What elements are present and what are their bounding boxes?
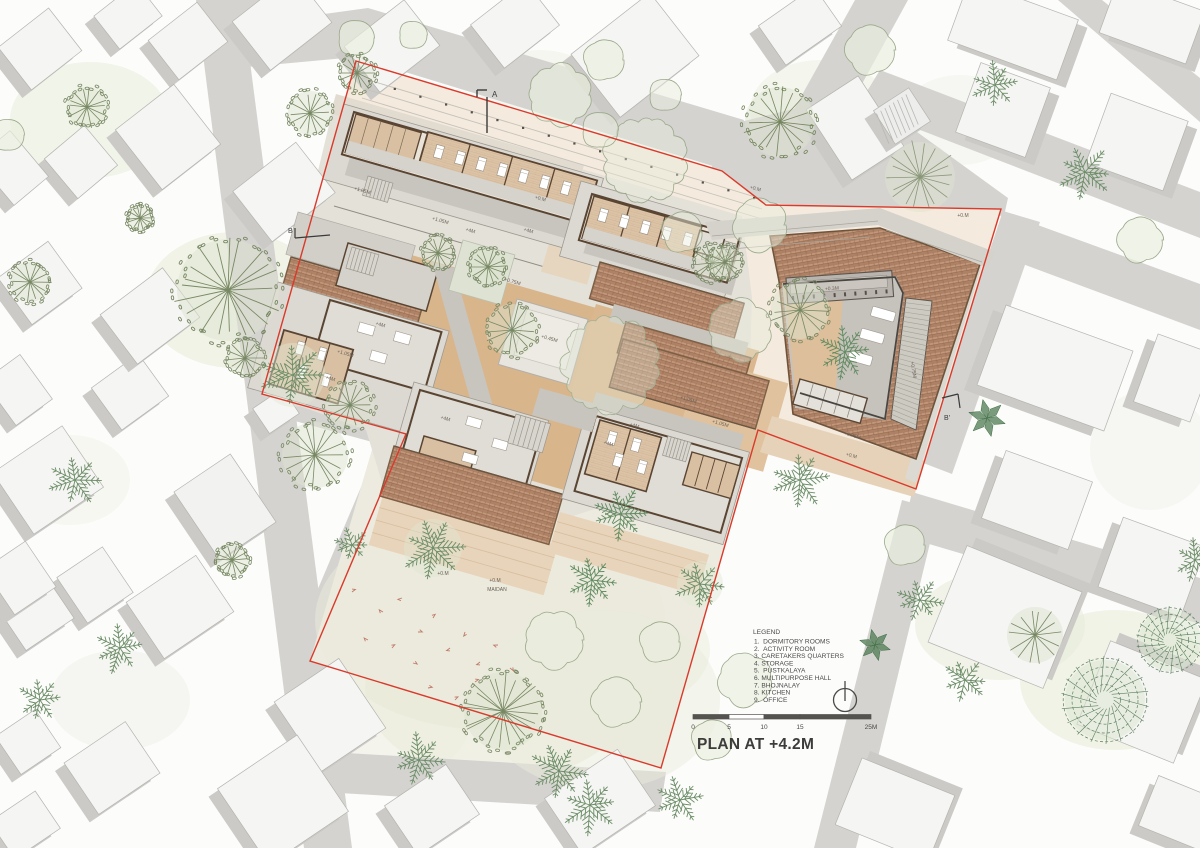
svg-text:B: B — [288, 228, 293, 235]
svg-text:+0.M: +0.M — [957, 213, 968, 219]
svg-text:+0.M: +0.M — [489, 578, 500, 584]
svg-text:5: 5 — [727, 724, 731, 731]
svg-text:+0.M: +0.M — [437, 571, 448, 577]
svg-text:A: A — [492, 90, 498, 99]
svg-text:3. CARETAKERS QUARTERS: 3. CARETAKERS QUARTERS — [754, 653, 844, 660]
svg-text:10: 10 — [760, 724, 768, 731]
svg-text:PLAN AT +4.2M: PLAN AT +4.2M — [697, 736, 814, 753]
svg-text:B': B' — [944, 415, 950, 422]
svg-text:2. ACTIVITY ROOM: 2. ACTIVITY ROOM — [754, 646, 815, 653]
svg-text:LEGEND: LEGEND — [753, 629, 780, 636]
svg-text:9. OFFICE: 9. OFFICE — [754, 697, 788, 704]
svg-text:1. DORMITORY ROOMS: 1. DORMITORY ROOMS — [754, 639, 830, 646]
svg-text:4. STORAGE: 4. STORAGE — [754, 660, 794, 667]
svg-text:25M: 25M — [865, 724, 878, 731]
svg-text:7. BHOJNALAY: 7. BHOJNALAY — [754, 682, 801, 689]
svg-text:5. PUSTKALAYA: 5. PUSTKALAYA — [754, 668, 806, 675]
svg-text:+0.3M: +0.3M — [825, 286, 839, 293]
svg-text:0: 0 — [691, 724, 695, 731]
svg-text:15: 15 — [796, 724, 804, 731]
svg-text:MAIDAN: MAIDAN — [487, 587, 507, 593]
svg-text:8. KITCHEN: 8. KITCHEN — [754, 690, 791, 697]
svg-text:6. MULTIPURPOSE HALL: 6. MULTIPURPOSE HALL — [754, 675, 832, 682]
